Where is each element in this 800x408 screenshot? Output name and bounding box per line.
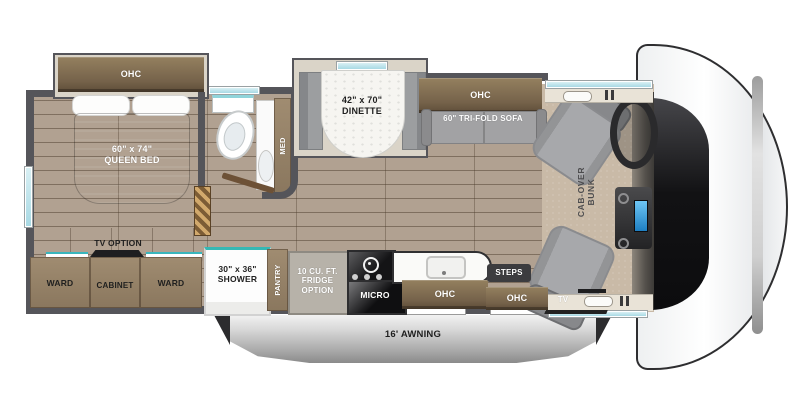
- cab-tv-label: TV: [550, 294, 576, 306]
- kitchen-ohc-label: OHC: [402, 280, 488, 309]
- ward-right-label: WARD: [140, 276, 202, 290]
- cab-vent-top-2: [611, 90, 614, 100]
- bathroom-top-window: [208, 86, 260, 95]
- pantry-label: PANTRY: [273, 254, 283, 306]
- rear-wall-window: [24, 166, 33, 228]
- shower-label: 30" x 36" SHOWER: [204, 258, 271, 290]
- queen-bed-label: 60" x 74" QUEEN BED: [74, 138, 190, 172]
- cab-door-handle-bottom: [584, 296, 613, 307]
- cab-vent-bottom-2: [626, 296, 629, 306]
- stove-burner-dot: [368, 262, 371, 265]
- dinette-bench-left: [299, 72, 323, 150]
- sofa-ohc-label: OHC: [419, 78, 542, 113]
- console-knob-top: [618, 193, 629, 204]
- entry-steps-label: STEPS: [487, 264, 531, 282]
- console-knob-bottom: [618, 238, 629, 249]
- awning-label: 16' AWNING: [214, 328, 612, 342]
- sofa-label: 60" TRI-FOLD SOFA: [424, 112, 542, 126]
- tv-top-view: [90, 250, 144, 257]
- tv-option-label: TV OPTION: [58, 237, 178, 249]
- cab-tv: [578, 289, 606, 293]
- bathroom-wall-left: [198, 92, 205, 190]
- kitchen-faucet-dot: [442, 271, 446, 275]
- steering-wheel: [610, 97, 658, 169]
- kitchen-sink: [426, 256, 466, 279]
- hood-accent-band: [752, 76, 763, 334]
- entry-ohc-label: OHC: [486, 287, 548, 310]
- rv-floorplan: 16' AWNING OHC 60" x 74" QUEEN BED MED 4…: [0, 0, 800, 408]
- microwave-label: MICRO: [347, 288, 403, 302]
- cab-window-top: [545, 80, 653, 89]
- entry-door-threshold: [544, 310, 607, 314]
- cabinet-label: CABINET: [90, 279, 140, 293]
- stove-burner-icon: [363, 257, 379, 273]
- cab-vent-bottom-1: [620, 296, 623, 306]
- ward-left-label: WARD: [30, 276, 90, 290]
- bedroom-ohc-label: OHC: [58, 57, 204, 92]
- dinette-label: 42" x 70" DINETTE: [321, 90, 403, 122]
- console-screen: [634, 200, 648, 232]
- cab-door-handle-top: [563, 91, 592, 102]
- cab-door-top: [545, 88, 653, 103]
- cab-vent-top-1: [605, 90, 608, 100]
- cab-over-bunk-label: CAB-OVER BUNK: [575, 144, 597, 240]
- fridge-label: 10 CU. FT. FRIDGE OPTION: [288, 254, 347, 308]
